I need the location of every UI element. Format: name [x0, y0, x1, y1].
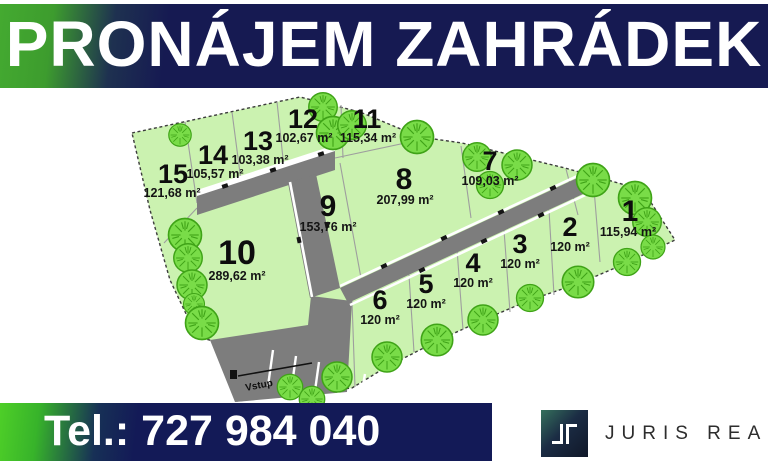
plot-area: 120 m² [500, 257, 540, 271]
plot-number: 5 [418, 269, 433, 299]
plot-number: 6 [372, 285, 387, 315]
juris-real-logo-icon [541, 410, 588, 457]
phone-number: Tel.: 727 984 040 [0, 407, 380, 456]
page-title: PRONÁJEM ZAHRÁDEK [6, 7, 763, 81]
plot-number: 14 [198, 140, 228, 170]
tree-icon [277, 374, 303, 400]
brand-name: JURIS REAL [605, 423, 768, 445]
plot-area: 289,62 m² [209, 269, 266, 283]
site-plan-map: 1 115,94 m² 2 120 m² 3 120 m² 4 120 m² 5… [0, 88, 768, 403]
plot-area: 109,03 m² [462, 174, 519, 188]
plot-area: 115,34 m² [340, 131, 396, 145]
tree-icon [169, 124, 192, 147]
plot-area: 102,67 m² [276, 131, 333, 145]
footer-phone-banner: Tel.: 727 984 040 [0, 403, 492, 461]
flyer: PRONÁJEM ZAHRÁDEK [0, 0, 768, 461]
plot-number: 15 [158, 159, 188, 189]
plot-area: 115,94 m² [600, 225, 656, 239]
plot-area: 105,57 m² [187, 167, 244, 181]
tree-icon [577, 164, 610, 197]
plot-area: 120 m² [550, 240, 590, 254]
plot-area: 153,76 m² [300, 220, 357, 234]
plot-number: 13 [243, 126, 273, 156]
tree-icon [322, 362, 352, 392]
tree-icon [174, 244, 203, 273]
tree-icon [401, 121, 434, 154]
plot-number: 4 [465, 248, 480, 278]
plot-area: 207,99 m² [377, 193, 434, 207]
tree-icon [468, 305, 498, 335]
logo-glyph-r [566, 424, 577, 444]
tree-icon [562, 266, 594, 298]
plot-number: 10 [218, 234, 256, 272]
tree-icon [186, 307, 219, 340]
tree-icon [517, 285, 544, 312]
tree-icon [614, 249, 641, 276]
plot-number: 2 [562, 212, 577, 242]
logo-glyph-j [552, 424, 563, 444]
plot-area: 120 m² [406, 297, 446, 311]
plot-number: 11 [353, 104, 382, 134]
plot-area: 103,38 m² [232, 153, 289, 167]
plot-number: 7 [482, 146, 497, 176]
top-banner: PRONÁJEM ZAHRÁDEK [0, 4, 768, 88]
tree-icon [372, 342, 402, 372]
plot-area: 121,68 m² [144, 186, 201, 200]
plot-number: 1 [622, 195, 639, 228]
plot-number: 9 [320, 190, 337, 223]
plot-area: 120 m² [360, 313, 400, 327]
plot-number: 8 [396, 163, 413, 196]
plot-number: 3 [512, 229, 527, 259]
plot-number: 12 [288, 104, 318, 134]
juris-real-logo: JURIS REAL [541, 410, 768, 457]
tree-icon [421, 324, 453, 356]
plot-area: 120 m² [453, 276, 493, 290]
